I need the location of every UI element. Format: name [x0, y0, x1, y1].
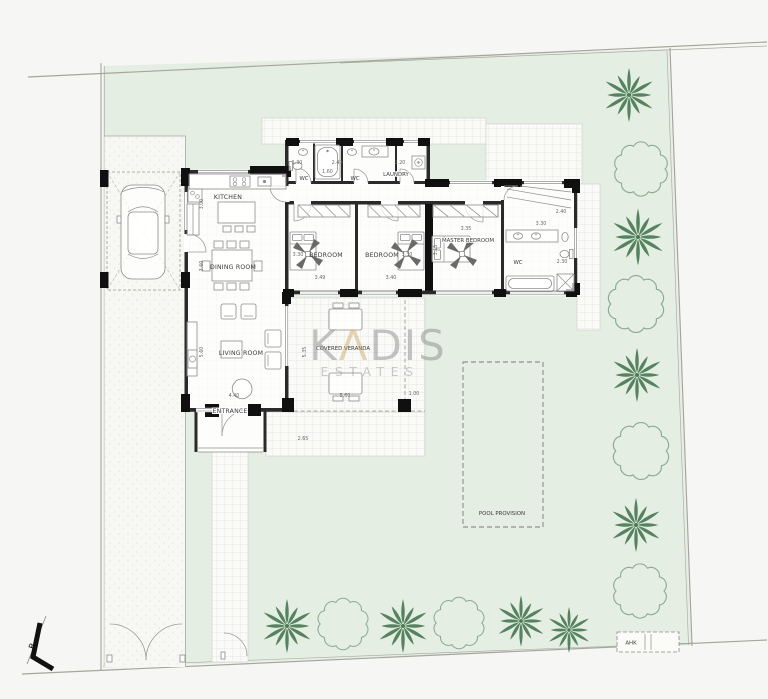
dim-veranda-width: 5.60	[340, 393, 351, 399]
car-icon	[117, 185, 169, 279]
sink-icon	[348, 149, 357, 156]
ahk-label: AHK	[625, 641, 637, 647]
dim-bed2-depth: 3.30	[402, 252, 413, 258]
bathtub-icon	[506, 276, 554, 291]
dim-laundry: 2.20	[395, 160, 406, 166]
wc3-label: WC	[513, 260, 522, 266]
laundry-label: LAUNDRY	[383, 172, 409, 178]
entrance-label: ENTRANCE	[212, 408, 247, 415]
vanity-icon	[362, 146, 388, 157]
toilet-icon	[560, 250, 573, 259]
dim-living-width: 4.40	[229, 393, 240, 399]
dim-bed1-depth: 3.30	[293, 252, 304, 258]
bedroom1-label: BEDROOM	[309, 252, 343, 259]
wc1-label: WC	[299, 176, 308, 182]
dim-wc3-east: 2.40	[556, 209, 567, 215]
fireplace-icon	[187, 322, 197, 376]
dim-kitchen: 3.00	[199, 199, 205, 210]
dim-wc2: 2.40	[332, 160, 343, 166]
dim-master-depth: 3.15	[433, 245, 439, 256]
dim-bed2-width: 3.40	[386, 275, 397, 281]
dim-wc3-south: 2.30	[557, 259, 568, 265]
wardrobe-icon	[433, 205, 498, 217]
wc2-label: WC	[350, 176, 359, 182]
utility-box-ahk: AHK	[617, 632, 679, 652]
dim-wc3-top: 3.30	[536, 221, 547, 227]
dim-living-length: 5.60	[199, 347, 205, 358]
kitchen-island-icon	[218, 202, 255, 232]
pool-label: POOL PROVISION	[479, 511, 525, 517]
veranda-column	[398, 399, 411, 412]
bedroom2-label: BEDROOM	[365, 252, 399, 259]
shower-icon	[557, 274, 574, 291]
dim-bed1-width: 3.49	[315, 275, 326, 281]
watermark-gold-a: Λ	[339, 321, 370, 370]
double-vanity-icon	[506, 230, 558, 242]
floor-plan-page: POOL PROVISION AHK B	[0, 0, 768, 699]
watermark-estates: ESTATES	[320, 364, 419, 379]
washer-icon	[412, 156, 425, 169]
wardrobe-icon	[298, 205, 350, 217]
living-label: LIVING ROOM	[219, 350, 263, 357]
floor-plan-canvas: POOL PROVISION AHK B	[0, 0, 768, 699]
dim-veranda-open: 1.00	[409, 391, 420, 397]
dim-walkway: 2.65	[298, 436, 309, 442]
basin-icon	[562, 233, 568, 242]
kitchen-label: KITCHEN	[214, 194, 242, 201]
dim-veranda-depth: 5.35	[302, 347, 308, 358]
section-marker-b: B	[27, 616, 53, 669]
master-bedroom-label: MASTER BEDROOM	[442, 238, 494, 244]
watermark-kadis: KΛDIS	[309, 321, 447, 370]
dim-bath: 1.60	[322, 169, 333, 175]
dim-master-width: 3.35	[461, 226, 472, 232]
dining-label: DINING ROOM	[210, 264, 256, 271]
wardrobe-icon	[368, 205, 420, 217]
sink-icon	[299, 149, 308, 156]
dim-wc1: 1.30	[292, 160, 303, 166]
dim-dining: 3.60	[199, 261, 205, 272]
